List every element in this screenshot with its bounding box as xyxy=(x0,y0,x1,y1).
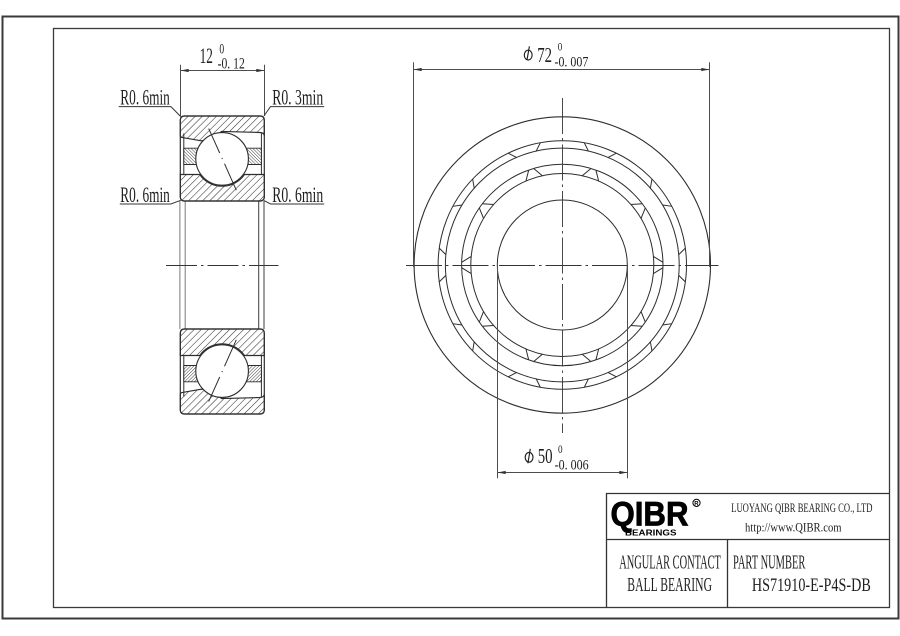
svg-text:BALL BEARING: BALL BEARING xyxy=(627,574,712,596)
svg-text:50: 50 xyxy=(538,444,553,468)
svg-text:http://www.QIBR.com: http://www.QIBR.com xyxy=(745,520,842,534)
svg-text:0: 0 xyxy=(558,444,563,456)
svg-text:12: 12 xyxy=(200,43,213,68)
svg-text:-0. 007: -0. 007 xyxy=(555,54,589,70)
svg-text:BEARINGS: BEARINGS xyxy=(625,529,677,538)
svg-text:R0. 6min: R0. 6min xyxy=(272,182,323,207)
svg-text:R0. 6min: R0. 6min xyxy=(120,182,170,207)
svg-text:72: 72 xyxy=(537,43,552,67)
svg-text:ANGULAR CONTACT: ANGULAR CONTACT xyxy=(619,552,721,574)
svg-text:R: R xyxy=(694,502,699,508)
svg-text:-0. 006: -0. 006 xyxy=(555,457,589,473)
svg-text:R0. 6min: R0. 6min xyxy=(120,84,170,109)
svg-text:-0. 12: -0. 12 xyxy=(218,55,245,72)
svg-text:PART NUMBER: PART NUMBER xyxy=(733,552,805,574)
svg-text:0: 0 xyxy=(558,42,563,54)
svg-text:R0. 3min: R0. 3min xyxy=(272,84,323,109)
svg-text:LUOYANG QIBR BEARING CO., LTD: LUOYANG QIBR BEARING CO., LTD xyxy=(731,501,872,515)
svg-text:HS71910-E-P4S-DB: HS71910-E-P4S-DB xyxy=(752,576,871,596)
